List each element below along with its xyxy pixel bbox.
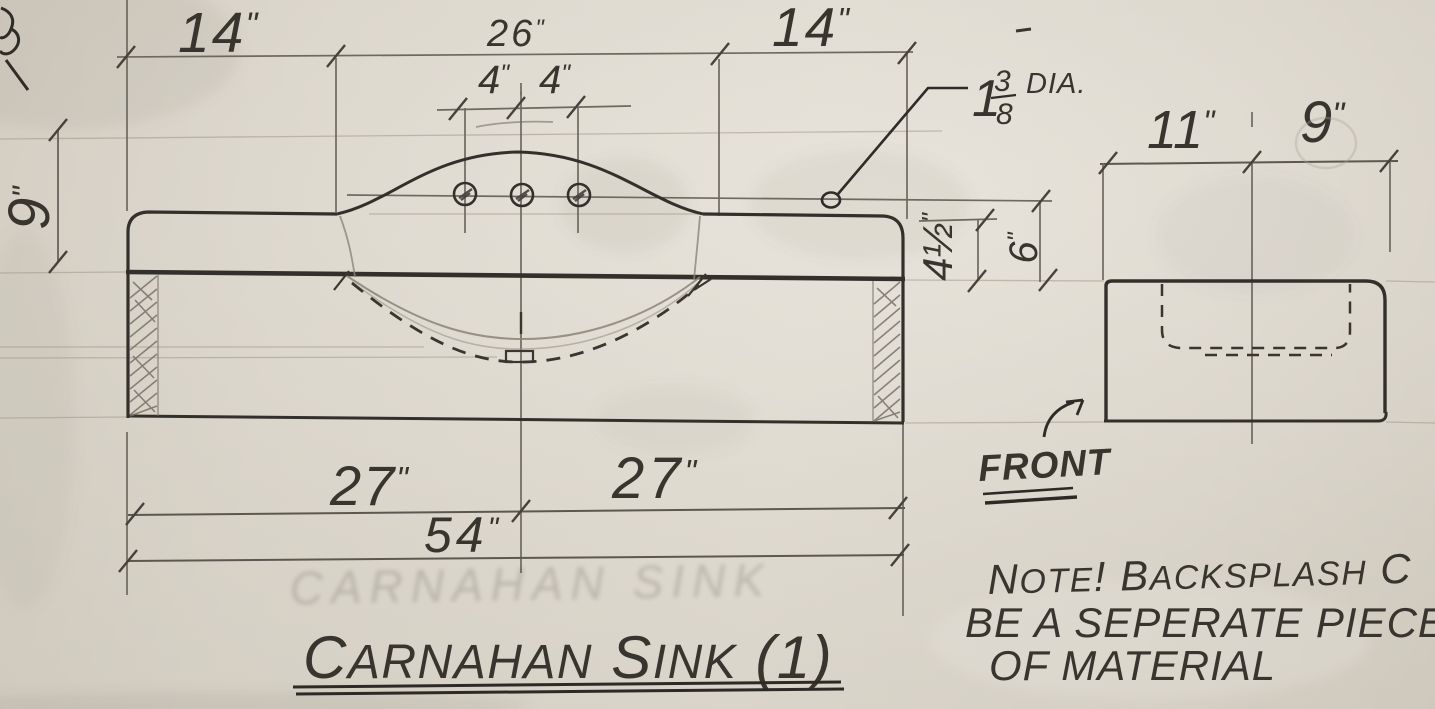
svg-text:DIA.: DIA. [1026,68,1086,100]
svg-text:27": 27" [611,446,700,511]
svg-text:4": 4" [478,58,510,102]
svg-text:14": 14" [772,0,851,58]
svg-text:9": 9" [0,185,62,230]
svg-text:NOTE! BACKSPLASH C: NOTE! BACKSPLASH C [987,545,1413,603]
svg-text:FRONT: FRONT [977,441,1114,489]
svg-text:54": 54" [424,507,502,563]
svg-text:4": 4" [539,58,571,102]
svg-text:26": 26" [486,13,547,55]
svg-text:8: 8 [996,98,1013,131]
svg-text:CARNAHAN SINK (1): CARNAHAN SINK (1) [303,624,833,691]
svg-text:11": 11" [1147,100,1216,160]
svg-text:27": 27" [329,454,410,517]
svg-text:CARNAHAN SINK: CARNAHAN SINK [289,554,772,614]
svg-text:3: 3 [994,65,1011,98]
svg-text:OF MATERIAL: OF MATERIAL [989,642,1276,689]
svg-text:BE A SEPERATE PIECE: BE A SEPERATE PIECE [965,599,1435,646]
